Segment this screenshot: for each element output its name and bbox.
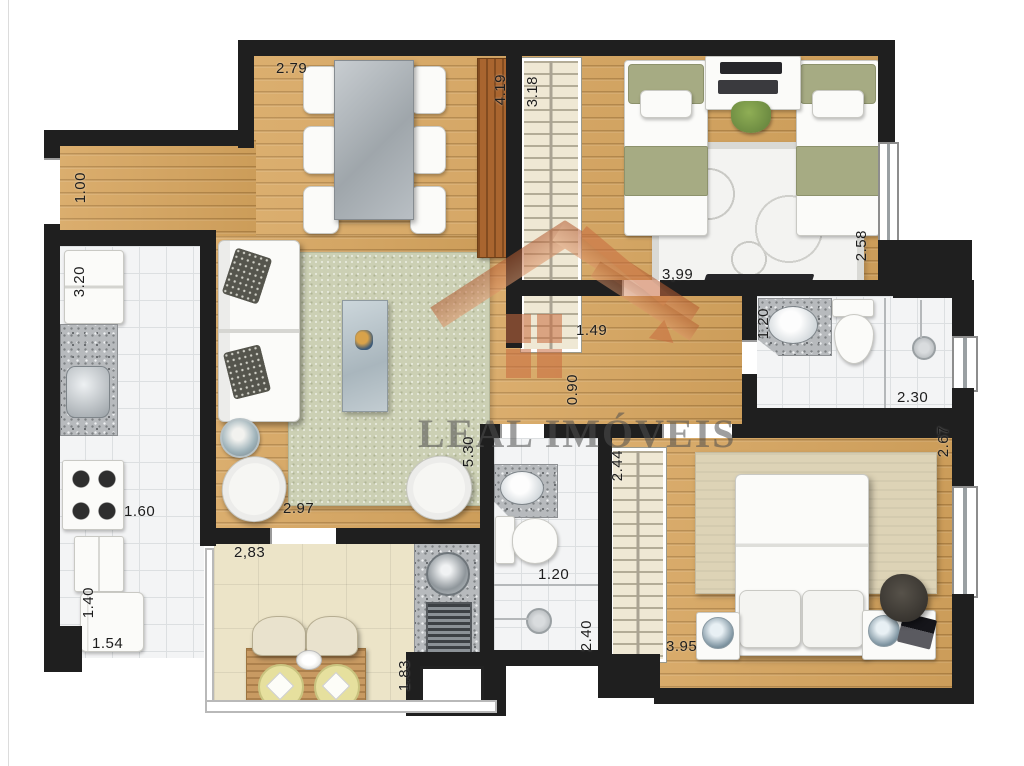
wall <box>732 424 954 438</box>
wall <box>522 280 622 296</box>
wall <box>44 230 216 246</box>
grill-sink <box>426 552 470 596</box>
bath1-window <box>952 336 978 392</box>
shower-head-icon <box>912 336 936 360</box>
wall <box>480 424 494 666</box>
wall <box>544 424 600 438</box>
floor-plan: LEAL IMÓVEIS 1.002.794.193.183,992.581.2… <box>0 0 1024 766</box>
side-table <box>220 418 260 458</box>
master-door-opening <box>662 424 736 438</box>
master-window <box>952 486 978 598</box>
dining-chair <box>410 186 446 234</box>
entry-door-opening <box>44 158 60 228</box>
master-pillow <box>739 590 801 648</box>
wall <box>44 130 252 146</box>
coffee-table <box>342 300 388 412</box>
wall <box>598 424 662 438</box>
wall <box>742 408 972 424</box>
kids-bed-right-cushion <box>812 90 864 118</box>
shower-divider <box>494 584 598 586</box>
grill-grate-icon <box>426 602 472 654</box>
wall <box>952 594 974 690</box>
table-decor <box>355 330 373 350</box>
tv-icon <box>720 62 782 74</box>
wall <box>952 280 974 336</box>
kids-closet <box>521 58 581 352</box>
refrigerator <box>64 250 124 324</box>
wall <box>336 528 492 544</box>
wall <box>200 528 270 544</box>
wall <box>44 146 60 158</box>
wall <box>654 688 974 704</box>
wall <box>878 40 895 142</box>
balcony-glass-rail <box>205 548 214 704</box>
master-pillow <box>802 590 864 648</box>
washing-machine <box>80 592 144 652</box>
dining-chair <box>410 66 446 114</box>
wall <box>44 224 60 650</box>
wall <box>506 46 522 348</box>
page-edge-line <box>8 0 9 766</box>
kids-bed-left-blanket <box>624 146 708 196</box>
kitchen-sink <box>66 366 110 418</box>
dining-chair <box>410 126 446 174</box>
game-console-icon <box>718 80 778 94</box>
wall <box>742 296 757 340</box>
wall <box>952 388 974 424</box>
kids-room-window <box>878 142 899 244</box>
stove <box>62 460 124 530</box>
master-closet <box>610 448 666 662</box>
balcony-glass-rail <box>205 700 497 713</box>
balcony-door-opening <box>270 528 340 544</box>
shower-divider <box>884 298 886 408</box>
dining-table <box>334 60 414 220</box>
wall <box>200 236 216 546</box>
bath2-sink <box>500 471 544 505</box>
wall <box>952 424 974 486</box>
kitchen-cabinet <box>74 536 124 592</box>
kids-bed-right-blanket <box>796 146 880 196</box>
plant-icon <box>880 574 928 622</box>
wall <box>480 424 500 438</box>
shower-pipe <box>920 300 922 338</box>
kids-bed-left-cushion <box>640 90 692 118</box>
wall <box>238 40 895 56</box>
balcony-chair <box>252 616 306 656</box>
bath2-door-opening <box>500 424 548 438</box>
bath1-door-opening <box>742 340 757 378</box>
wall <box>660 280 895 296</box>
kids-room-door-opening <box>622 280 664 296</box>
plant-icon <box>731 101 771 133</box>
bath1-sink <box>768 306 818 344</box>
wall <box>598 654 660 698</box>
wall <box>44 626 82 672</box>
shower-pipe <box>494 618 528 620</box>
lamp-icon <box>702 617 734 649</box>
shower-head-icon <box>526 608 552 634</box>
toilet-bowl <box>512 518 558 564</box>
serving-bowl <box>296 650 322 670</box>
